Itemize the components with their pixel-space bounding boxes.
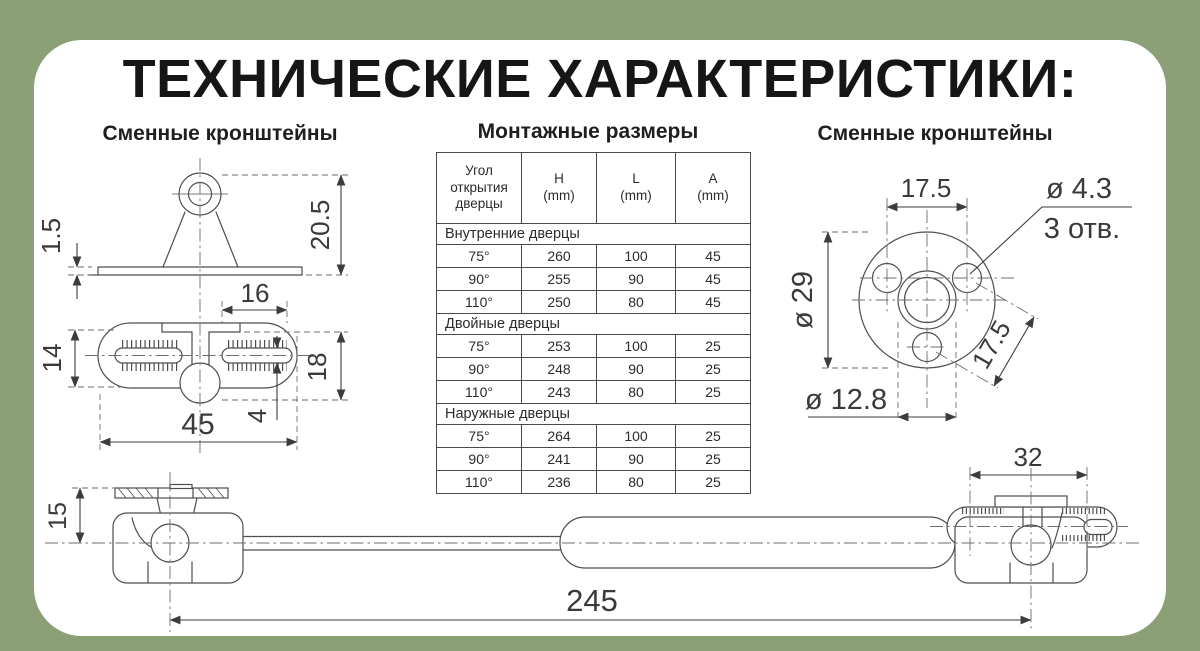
table-header-a: A (mm)	[676, 153, 751, 224]
page-title: ТЕХНИЧЕСКИЕ ХАРАКТЕРИСТИКИ:	[0, 48, 1200, 110]
gas-cylinder-figure	[243, 517, 955, 568]
dim-label-plate-thickness: 1.5	[36, 218, 66, 254]
table-row: 75° 260 100 45	[437, 245, 751, 268]
table-cell: 45	[676, 268, 751, 291]
table-cell: 110°	[437, 291, 522, 314]
dim-label-outer-dia: ø 29	[787, 271, 819, 329]
dim-label-oval-height: 18	[302, 353, 332, 382]
table-row: 75° 253 100 25	[437, 335, 751, 358]
table-cell: 75°	[437, 245, 522, 268]
dim-label-top-bracket-height: 20.5	[305, 200, 335, 251]
table-header-h: H (mm)	[522, 153, 597, 224]
table-cell: 248	[522, 358, 597, 381]
dim-label-oval-length: 45	[181, 408, 214, 441]
table-header-l: L (mm)	[597, 153, 676, 224]
table-section-label: Внутренние дверцы	[437, 224, 751, 245]
dim-label-hole-dia: ø 4.3	[1046, 173, 1112, 205]
table-cell: 100	[597, 335, 676, 358]
dim-label-slot: 4	[242, 409, 272, 423]
dim-label-bracket-height: 15	[44, 502, 72, 530]
table-section-label: Наружные дверцы	[437, 404, 751, 425]
heading-left-brackets: Сменные кронштейны	[70, 122, 370, 146]
technical-drawing-left-brackets: 20.5 1.5 16	[30, 150, 360, 462]
table-row: 110° 243 80 25	[437, 381, 751, 404]
dim-label-flange-diag-spacing: 17.5	[966, 315, 1017, 374]
table-cell: 45	[676, 291, 751, 314]
dim-label-oval-width: 14	[37, 344, 67, 373]
top-bracket-figure	[88, 173, 302, 275]
table-cell: 90	[597, 268, 676, 291]
heading-right-brackets: Сменные кронштейны	[785, 122, 1085, 146]
table-cell: 90°	[437, 358, 522, 381]
table-section-row: Внутренние дверцы	[437, 224, 751, 245]
page: ТЕХНИЧЕСКИЕ ХАРАКТЕРИСТИКИ: Сменные крон…	[0, 0, 1200, 651]
table-header-angle: Угол открытия дверцы	[437, 153, 522, 224]
table-cell: 90	[597, 358, 676, 381]
table-row: 90° 248 90 25	[437, 358, 751, 381]
right-bracket-figure	[947, 496, 1117, 583]
table-cell: 80	[597, 381, 676, 404]
table-cell: 100	[597, 245, 676, 268]
dim-label-flange-top-spacing: 17.5	[901, 173, 952, 203]
table-cell: 75°	[437, 335, 522, 358]
table-section-row: Двойные дверцы	[437, 314, 751, 335]
table-cell: 25	[676, 335, 751, 358]
table-row: 110° 250 80 45	[437, 291, 751, 314]
table-cell: 250	[522, 291, 597, 314]
table-cell: 110°	[437, 381, 522, 404]
table-cell: 90°	[437, 268, 522, 291]
dim-label-bracket-width: 32	[1014, 442, 1043, 472]
dim-label-hole-count: 3 отв.	[1044, 213, 1120, 245]
dim-label-center-dia: ø 12.8	[805, 384, 887, 416]
table-cell: 260	[522, 245, 597, 268]
heading-mounting-sizes: Монтажные размеры	[438, 120, 738, 144]
table-cell: 253	[522, 335, 597, 358]
dim-label-total-length: 245	[566, 583, 618, 618]
table-section-row: Наружные дверцы	[437, 404, 751, 425]
dim-label-hole-offset: 16	[241, 278, 270, 308]
table-cell: 25	[676, 358, 751, 381]
left-bracket-figure	[113, 485, 243, 584]
oval-bracket-figure	[98, 323, 297, 403]
table-cell: 45	[676, 245, 751, 268]
table-section-label: Двойные дверцы	[437, 314, 751, 335]
table-row: 90° 255 90 45	[437, 268, 751, 291]
table-cell: 243	[522, 381, 597, 404]
technical-drawing-gas-lift: 15 32 245	[30, 440, 1170, 646]
table-header-row: Угол открытия дверцы H (mm) L (mm) A (mm…	[437, 153, 751, 224]
table-cell: 255	[522, 268, 597, 291]
technical-drawing-flange-bracket: 17.5 ø 4.3 3 отв. ø 29 17.5 ø 12.8	[780, 150, 1170, 440]
table-cell: 80	[597, 291, 676, 314]
table-cell: 25	[676, 381, 751, 404]
